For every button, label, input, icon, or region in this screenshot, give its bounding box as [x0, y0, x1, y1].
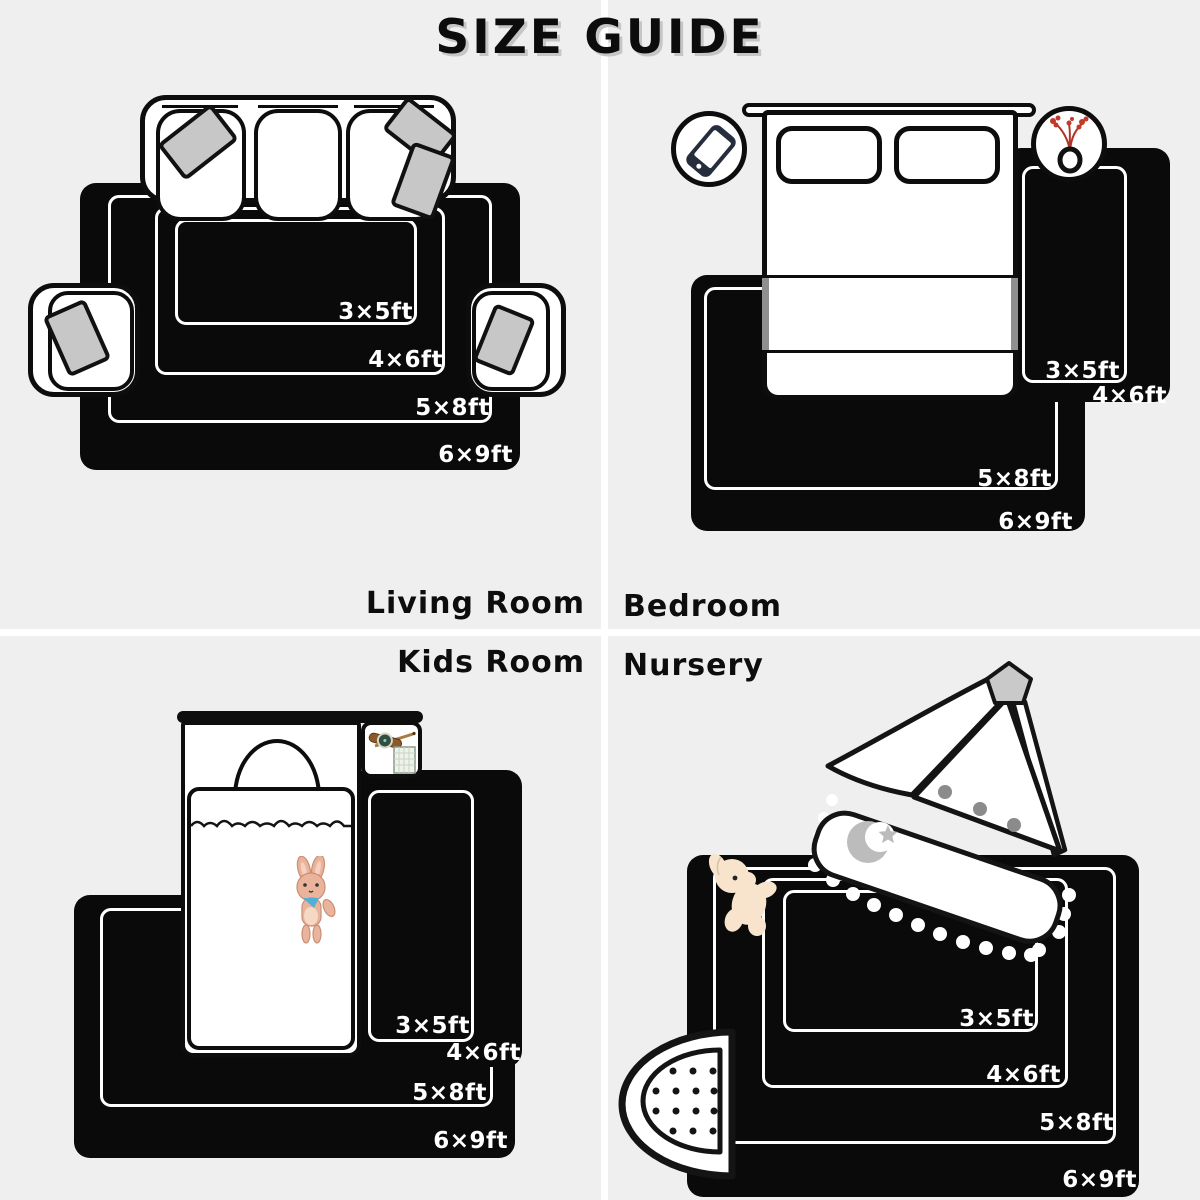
rug-size-label-3x5: 3×5ft	[874, 1006, 1034, 1032]
kids-room-label: Kids Room	[260, 645, 585, 680]
bunny-plush-icon	[284, 856, 340, 944]
polka-dot-mat	[618, 1026, 743, 1186]
nightstand-circle-phone	[671, 111, 747, 187]
page-title: SIZE GUIDE	[0, 10, 1200, 65]
rug-size-label-5x8: 5×8ft	[327, 1080, 487, 1106]
bed-pillow	[894, 126, 1000, 184]
size-guide-poster: SIZE GUIDE 3×5ft 4×6ft 5×8ft 6×9ft	[0, 0, 1200, 1200]
nightstand-items	[366, 726, 419, 775]
sofa-cushion	[254, 109, 342, 221]
blanket-edge	[762, 278, 769, 350]
sofa-seam	[258, 105, 338, 108]
rug-size-label-6x9: 6×9ft	[353, 442, 513, 468]
rug-size-label-6x9: 6×9ft	[348, 1128, 508, 1154]
armchair-right	[466, 283, 566, 397]
nightstand-circle-vase	[1031, 106, 1107, 182]
horizontal-divider	[0, 629, 1200, 636]
bunny-belly	[304, 907, 318, 925]
living-room-label: Living Room	[260, 586, 585, 621]
rug-size-label-5x8: 5×8ft	[954, 1110, 1114, 1136]
rug-size-label-4x6: 4×6ft	[901, 1062, 1061, 1088]
rug-size-label-4x6: 4×6ft	[361, 1040, 521, 1066]
bed-pillow	[776, 126, 882, 184]
armchair-left	[28, 283, 140, 397]
vertical-divider	[601, 0, 608, 1200]
blanket-edge	[1011, 278, 1018, 350]
bed-blanket-band	[762, 275, 1018, 353]
rug-size-label-3x5: 3×5ft	[253, 299, 413, 325]
notepad-icon	[394, 747, 415, 773]
sofa-seam	[162, 105, 238, 108]
phone-icon	[683, 122, 738, 180]
nursery-label: Nursery	[623, 648, 1023, 683]
nightstand	[361, 721, 422, 778]
teddy-plush-icon	[705, 845, 783, 937]
blanket-scallop-edge	[191, 815, 351, 831]
hanging-bassinet	[788, 638, 1093, 978]
sofa	[140, 95, 456, 225]
rug-size-label-6x9: 6×9ft	[913, 509, 1073, 535]
bedroom-label: Bedroom	[623, 589, 1023, 624]
rug-3x5-outline	[368, 790, 474, 1042]
vase-flowers-icon	[1042, 113, 1098, 175]
rug-3x5-outline	[1022, 166, 1127, 383]
rug-size-label-5x8: 5×8ft	[330, 395, 490, 421]
vase	[1060, 149, 1080, 171]
rug-size-label-4x6: 4×6ft	[1007, 383, 1167, 409]
rug-size-label-4x6: 4×6ft	[283, 347, 443, 373]
phone-home-button	[695, 163, 702, 170]
rug-size-label-6x9: 6×9ft	[977, 1167, 1137, 1193]
rug-size-label-5x8: 5×8ft	[892, 466, 1052, 492]
